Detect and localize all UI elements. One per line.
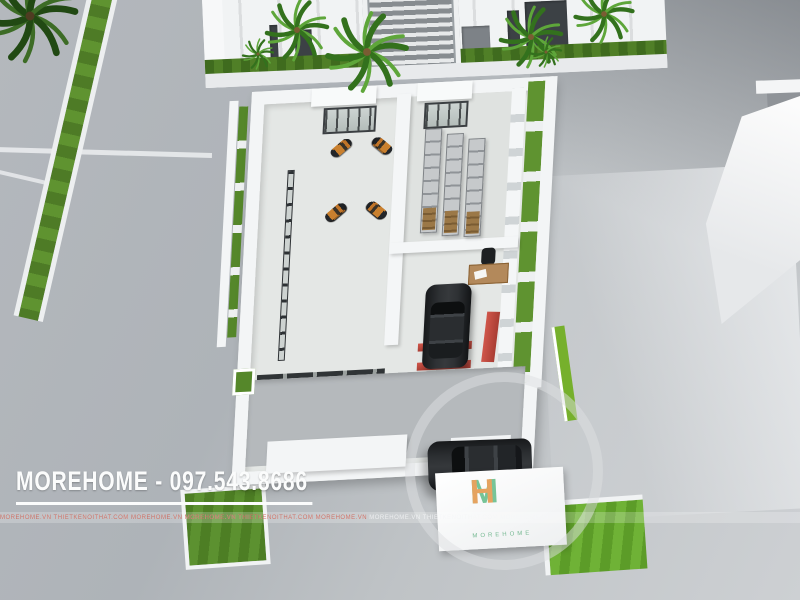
glass-entry-door [423, 101, 468, 129]
facade-window [269, 25, 279, 61]
glass-entry-door [322, 105, 376, 134]
grass-median-strip [14, 0, 121, 322]
palm-tree [0, 0, 75, 62]
circle-watermark [405, 372, 603, 570]
grass-planter-small [232, 368, 255, 395]
entry-canopy [311, 85, 377, 106]
neighbor-roof-strip [756, 79, 800, 94]
road-marking [0, 147, 212, 158]
suv-indoor [422, 283, 472, 370]
render-scene: M H MOREHOME MOREHOME - 097.543.8686 MOR… [0, 0, 800, 600]
motorcycle [372, 136, 393, 156]
watermark-banner: MOREHOME.VN THIETKENOITHAT.COM MOREHOME.… [0, 512, 800, 523]
entry-canopy [417, 80, 473, 101]
banner-text-right: MOREHOME.VN THIETKENOITHAT.COM MOREHOME.… [0, 515, 367, 521]
entrance-staircase [362, 0, 461, 73]
motorcycle [365, 200, 386, 220]
stair-steps [369, 0, 454, 71]
watermark-text: MOREHOME - 097.543.8686 [16, 466, 313, 505]
office-desk [468, 263, 509, 285]
